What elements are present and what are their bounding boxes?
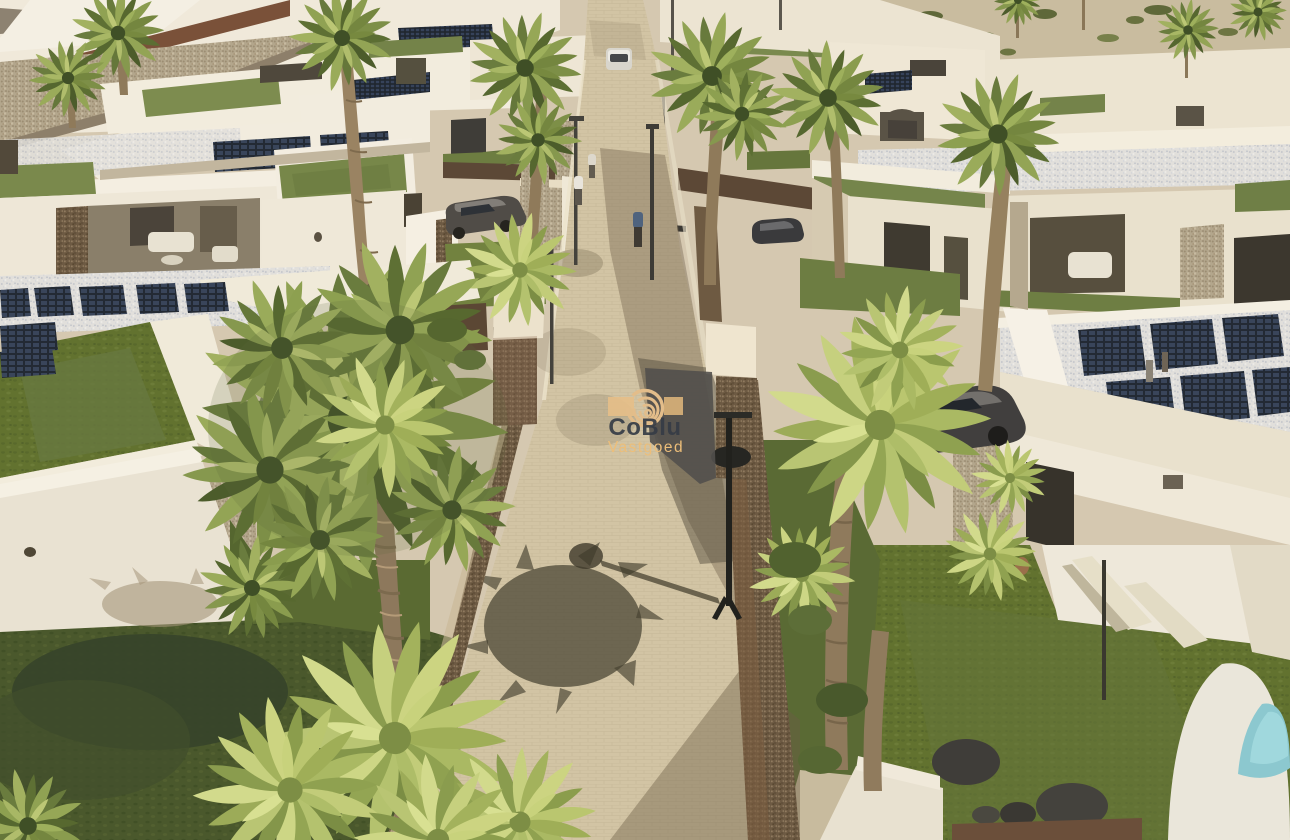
svg-text:Vastgoed: Vastgoed: [608, 439, 684, 456]
svg-text:CoBlu: CoBlu: [608, 414, 681, 441]
